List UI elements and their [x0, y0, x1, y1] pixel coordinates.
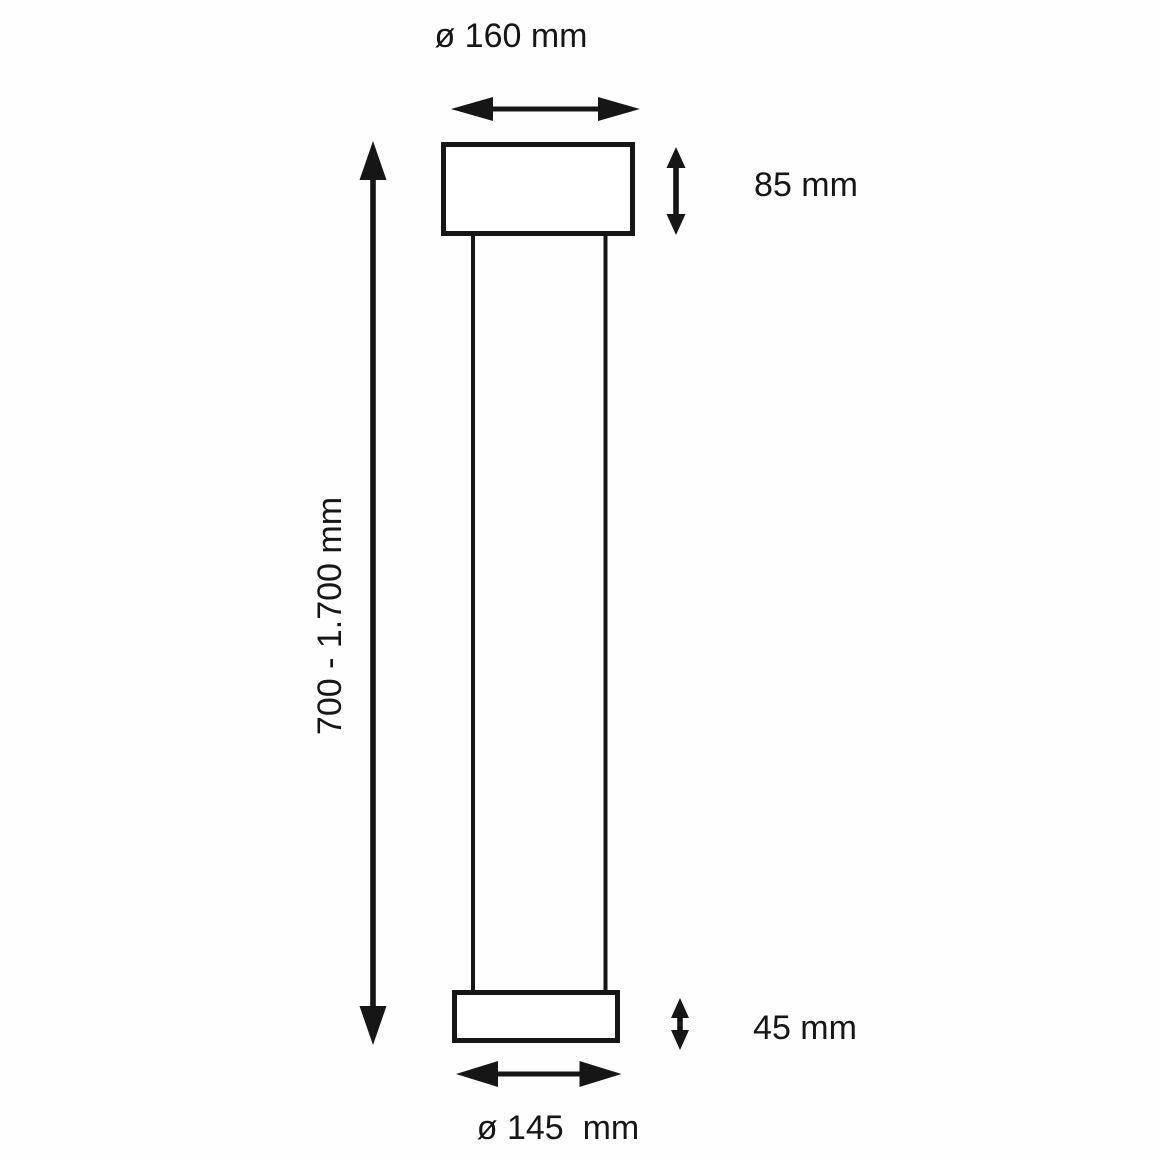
svg-text:ø 160 mm: ø 160 mm	[434, 17, 587, 55]
svg-text:85 mm: 85 mm	[754, 166, 858, 204]
svg-text:ø 145 mm: ø 145 mm	[477, 1109, 639, 1147]
svg-text:45 mm: 45 mm	[753, 1009, 857, 1047]
svg-text:700 - 1.700 mm: 700 - 1.700 mm	[311, 497, 349, 735]
